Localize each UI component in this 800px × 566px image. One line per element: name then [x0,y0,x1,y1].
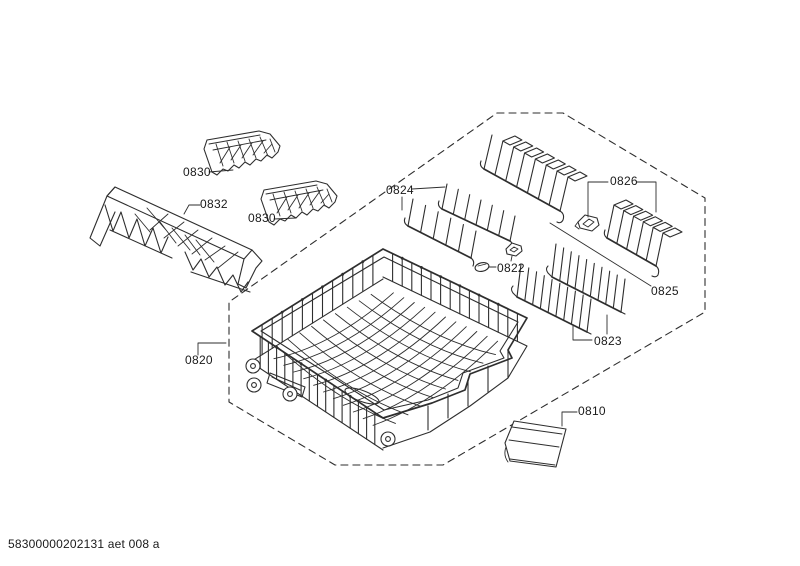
exploded-parts-drawing [0,0,800,566]
part-0810-tray [505,421,566,467]
part-0823-tine-rows [512,244,626,334]
part-label-0822: 0822 [497,262,525,275]
part-label-0830-right: 0830 [248,212,276,225]
part-label-0832: 0832 [200,198,228,211]
part-0832-shelf [90,187,262,292]
document-code: 58300000202131 aet 008 a [8,537,160,551]
part-label-0824: 0824 [386,184,414,197]
parts-diagram-page: { "colors": { "background": "#ffffff", "… [0,0,800,566]
part-0826-holder-and-tine-row [575,200,682,277]
part-0830-insert-top [204,131,280,175]
part-label-0820: 0820 [185,354,213,367]
part-label-0826: 0826 [610,175,638,188]
part-label-0823: 0823 [594,335,622,348]
part-0825-tine-row [480,135,587,223]
part-label-0825: 0825 [651,285,679,298]
part-0820-basket [246,249,527,450]
part-label-0830-top: 0830 [183,166,211,179]
part-label-0810: 0810 [578,405,606,418]
part-0824-tine-rows [404,184,515,266]
